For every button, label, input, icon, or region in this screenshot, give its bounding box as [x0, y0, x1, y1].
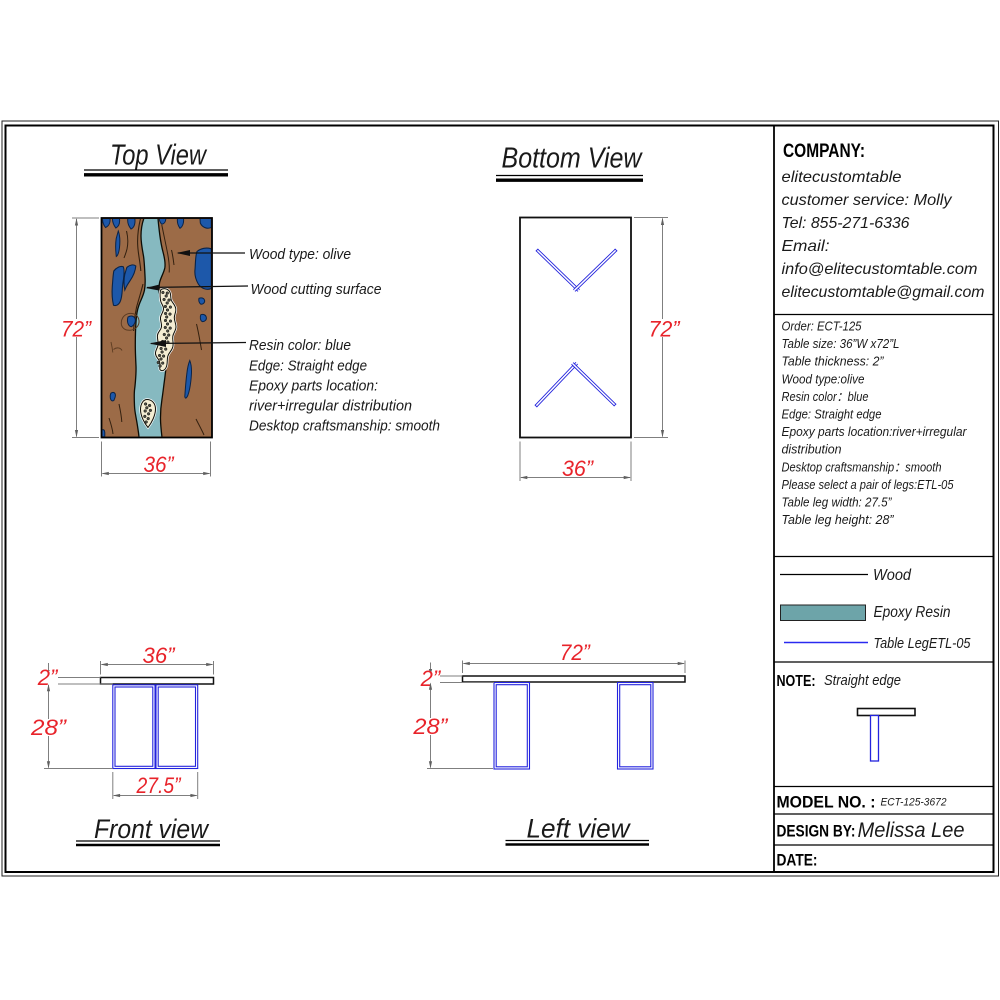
svg-text:Please select a pair of legs:E: Please select a pair of legs:ETL-05: [782, 478, 954, 492]
svg-text:36”: 36”: [143, 643, 177, 668]
svg-text:72”: 72”: [61, 317, 93, 342]
svg-text:river+irregular distribution: river+irregular distribution: [249, 398, 412, 415]
svg-text:28”: 28”: [412, 714, 449, 739]
svg-text:Epoxy parts location:: Epoxy parts location:: [249, 378, 378, 395]
svg-text:Bottom View: Bottom View: [502, 143, 644, 175]
svg-text:Tel: 855-271-6336: Tel: 855-271-6336: [782, 215, 910, 232]
svg-text:2”: 2”: [37, 665, 59, 690]
svg-text:Top View: Top View: [110, 140, 208, 172]
svg-text:elitecustomtable: elitecustomtable: [782, 169, 902, 186]
svg-text:Wood type:olive: Wood type:olive: [782, 372, 865, 386]
svg-text:Resin color: blue: Resin color: blue: [249, 337, 351, 354]
svg-text:36”: 36”: [144, 452, 176, 477]
svg-text:Edge: Straight edge: Edge: Straight edge: [782, 408, 882, 422]
svg-text:NOTE:: NOTE:: [777, 673, 816, 690]
svg-text:72”: 72”: [649, 317, 682, 342]
svg-text:Wood: Wood: [873, 567, 912, 584]
svg-text:Edge: Straight edge: Edge: Straight edge: [249, 358, 367, 375]
svg-text:Wood cutting surface: Wood cutting surface: [251, 281, 382, 298]
svg-text:Wood type: olive: Wood type: olive: [249, 246, 351, 263]
svg-text:Melissa Lee: Melissa Lee: [858, 819, 965, 842]
svg-text:DESIGN BY:: DESIGN BY:: [777, 822, 856, 841]
svg-text:Epoxy Resin: Epoxy Resin: [874, 604, 951, 621]
svg-text:info@elitecustomtable.com: info@elitecustomtable.com: [782, 261, 978, 278]
svg-text:28”: 28”: [30, 715, 68, 740]
svg-text:Resin color：blue: Resin color：blue: [782, 390, 869, 404]
svg-text:Table leg height: 28”: Table leg height: 28”: [782, 513, 895, 527]
svg-text:Straight edge: Straight edge: [824, 673, 901, 689]
svg-text:36”: 36”: [562, 456, 595, 481]
svg-text:Table leg width: 27.5”: Table leg width: 27.5”: [782, 496, 893, 510]
svg-text:Order: ECT-125: Order: ECT-125: [782, 320, 862, 334]
svg-text:ECT-125-3672: ECT-125-3672: [881, 797, 947, 809]
svg-text:Desktop craftsmanship：smooth: Desktop craftsmanship：smooth: [782, 460, 942, 474]
svg-text:MODEL NO. :: MODEL NO. :: [777, 793, 876, 812]
svg-text:72”: 72”: [560, 640, 592, 665]
svg-text:Left view: Left view: [527, 814, 631, 844]
svg-text:Table LegETL-05: Table LegETL-05: [874, 636, 972, 652]
svg-text:COMPANY:: COMPANY:: [783, 141, 865, 162]
svg-text:DATE:: DATE:: [777, 851, 818, 870]
svg-text:Front view: Front view: [94, 814, 209, 844]
svg-text:Desktop craftsmanship: smooth: Desktop craftsmanship: smooth: [249, 418, 440, 435]
svg-text:Table size: 36”W x72”L: Table size: 36”W x72”L: [782, 337, 900, 351]
svg-text:Email:: Email:: [782, 238, 830, 255]
svg-text:Epoxy parts location:river+irr: Epoxy parts location:river+irregular: [782, 425, 968, 439]
svg-text:elitecustomtable@gmail.com: elitecustomtable@gmail.com: [782, 284, 985, 301]
svg-text:distribution: distribution: [782, 443, 842, 457]
svg-text:Table thickness: 2”: Table thickness: 2”: [782, 355, 885, 369]
svg-text:customer service: Molly: customer service: Molly: [782, 192, 953, 209]
svg-text:27.5”: 27.5”: [136, 773, 182, 798]
